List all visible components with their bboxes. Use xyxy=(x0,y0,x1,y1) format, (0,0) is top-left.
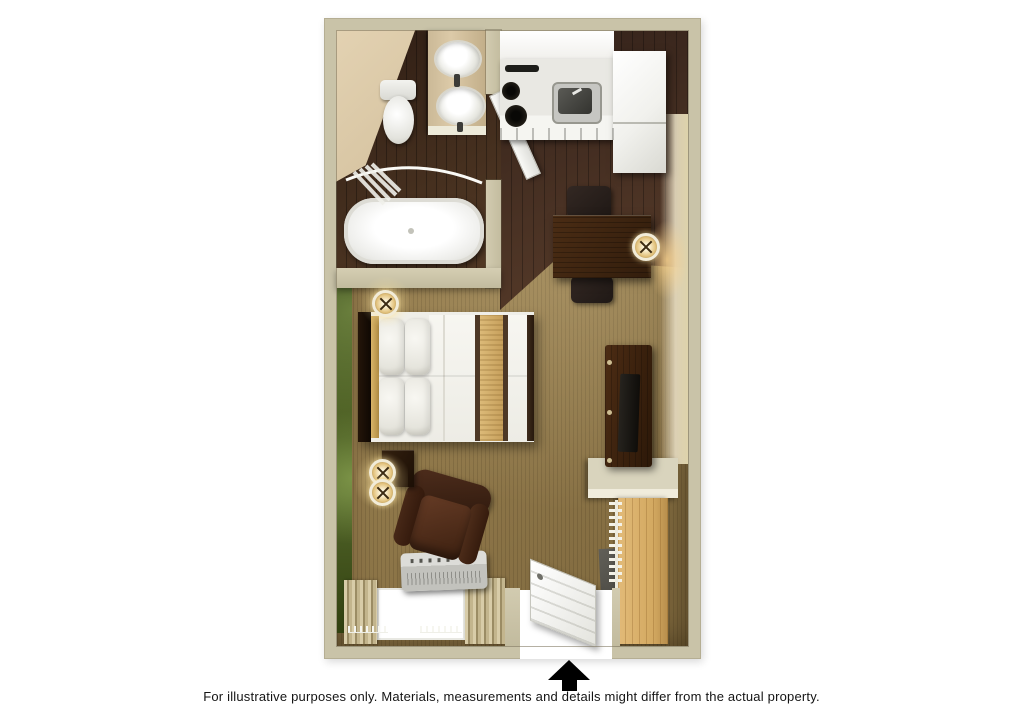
bathroom xyxy=(336,30,501,288)
bed-foot-band xyxy=(527,315,534,441)
wall-stub-right xyxy=(612,588,620,646)
floorplan-image: For illustrative purposes only. Material… xyxy=(0,0,1023,716)
refrigerator-door-seam xyxy=(613,122,666,124)
pillow-3 xyxy=(379,378,404,435)
refrigerator xyxy=(613,51,666,173)
vanity-sink-upper xyxy=(434,40,482,78)
desk-lamp xyxy=(632,233,660,261)
cabinet-fronts xyxy=(500,128,614,140)
duvet-fold xyxy=(443,315,445,441)
console-knob-2 xyxy=(607,410,612,415)
kitchen-upper-cabinets xyxy=(500,31,614,60)
faucet xyxy=(454,74,460,87)
closet-floor xyxy=(618,498,668,644)
tub-drain xyxy=(408,228,414,234)
toilet xyxy=(383,96,414,144)
stove-control-panel xyxy=(505,65,539,72)
bed-crease xyxy=(379,375,533,377)
bed-runner xyxy=(480,315,503,441)
disclaimer-caption: For illustrative purposes only. Material… xyxy=(0,689,1023,704)
curtain-rod-1 xyxy=(348,626,388,633)
stove-burner-2 xyxy=(505,105,527,127)
console-knob-1 xyxy=(607,360,612,365)
wall-stub-left xyxy=(505,588,520,646)
desk-lamp-glow xyxy=(646,220,688,300)
tv xyxy=(618,374,641,453)
entrance-arrow-icon xyxy=(548,660,590,680)
desk-chair-1 xyxy=(567,186,611,218)
bed-stripe-2 xyxy=(503,315,508,441)
wall-sconce-3 xyxy=(369,479,396,506)
bathroom-wall-right-upper xyxy=(486,30,501,94)
ac-vents xyxy=(407,571,481,586)
vanity-sink-lower xyxy=(436,86,486,126)
curtain-left xyxy=(344,580,377,644)
door-handle xyxy=(537,572,543,580)
curtain-rod-2 xyxy=(420,626,462,633)
wall-sconce-1 xyxy=(372,290,399,317)
pillow-4 xyxy=(405,378,430,435)
headboard xyxy=(358,312,371,442)
desk-chair-2 xyxy=(571,276,613,303)
stove-burner-1 xyxy=(502,82,520,100)
faucet-2 xyxy=(457,122,463,132)
floorplan xyxy=(324,18,701,659)
bed-scarf xyxy=(371,316,379,438)
shower-curtain-rod xyxy=(336,142,496,212)
console-knob-3 xyxy=(607,458,612,463)
